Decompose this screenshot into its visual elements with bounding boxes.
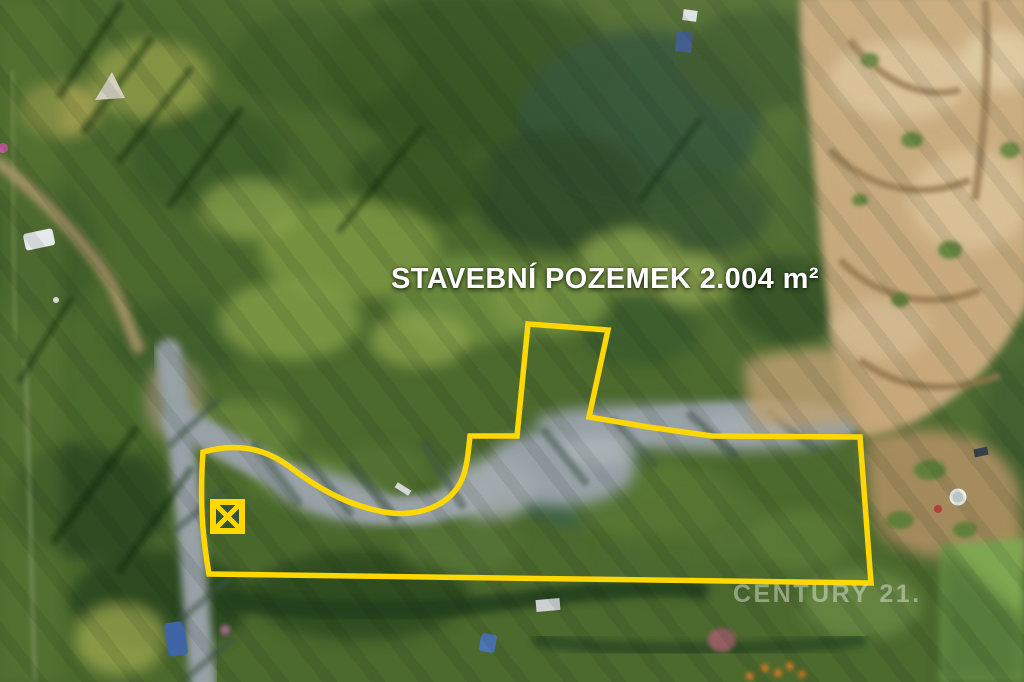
plot-corner-marker bbox=[213, 502, 242, 531]
plot-title-label: STAVEBNÍ POZEMEK 2.004 m² bbox=[391, 263, 819, 296]
century21-watermark: CENTURY 21. bbox=[733, 580, 922, 609]
aerial-photo-scene: STAVEBNÍ POZEMEK 2.004 m² CENTURY 21. bbox=[0, 0, 1024, 682]
plot-boundary-line bbox=[202, 324, 871, 583]
